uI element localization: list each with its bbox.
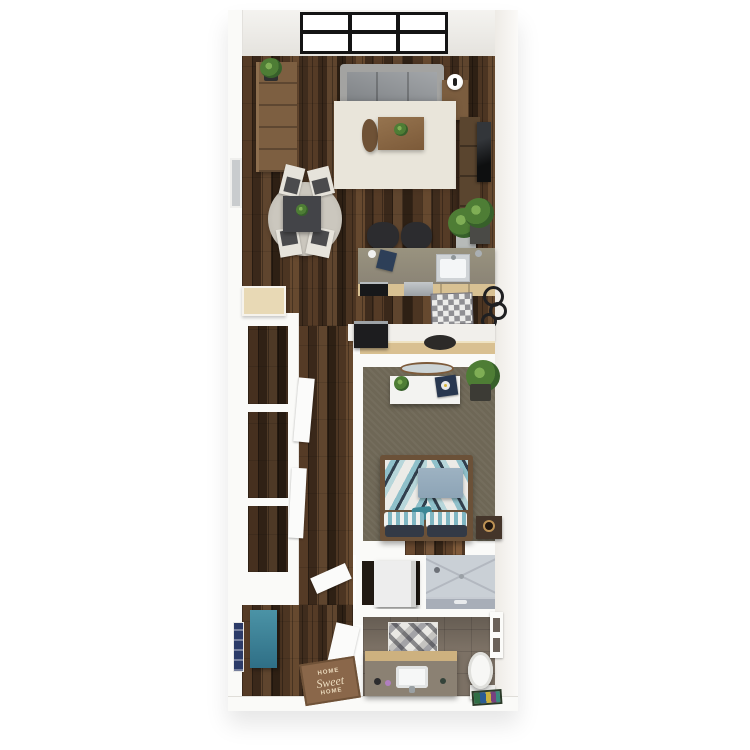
refrigerator — [354, 321, 388, 348]
recessed-shelf-slot-1 — [493, 618, 500, 632]
closet-niche-3 — [248, 506, 288, 572]
shower-floor — [426, 555, 495, 597]
bedroom-west-wall — [353, 354, 363, 555]
bedroom-south-wall-right — [465, 541, 495, 555]
bathroom-west-wall-upper — [353, 609, 363, 625]
dresser-plant — [394, 376, 409, 391]
bed-gray-blanket — [418, 468, 463, 498]
lamp-slot — [453, 78, 457, 86]
wall-tv — [477, 122, 491, 182]
sink-basin — [440, 259, 466, 278]
window-pane — [303, 34, 348, 51]
blue-bench — [250, 610, 277, 668]
counter-knob — [475, 250, 482, 257]
dining-centerpiece — [296, 204, 308, 216]
closet-niche-1 — [248, 326, 288, 404]
recessed-shelf-slot-2 — [493, 638, 500, 652]
right-wall — [495, 10, 518, 710]
stove — [360, 282, 388, 296]
coffee-table-plant — [394, 123, 408, 136]
vanity-sink — [396, 666, 428, 688]
closet-niche-2 — [248, 412, 288, 498]
curved-stool — [362, 119, 378, 152]
shower-drain — [459, 574, 464, 579]
counter-stool — [424, 335, 456, 350]
bar-stool-1 — [367, 222, 399, 250]
dishwasher — [404, 282, 433, 296]
entry-side-shelf — [242, 286, 286, 316]
apartment-floor-plan: HOME Sweet HOME — [228, 10, 518, 710]
bedroom-plant-pot — [470, 384, 491, 401]
counter-plate — [368, 250, 376, 258]
sink-faucet — [451, 255, 456, 260]
window-pane — [352, 34, 397, 51]
bed-navy-pillow-left — [385, 525, 424, 537]
living-room-window — [300, 12, 448, 54]
vanity-bottle-2 — [385, 680, 391, 686]
vanity-faucet — [409, 686, 415, 693]
window-pane — [400, 15, 445, 30]
bedroom-door-threshold — [405, 541, 465, 555]
bedroom-south-wall-left — [353, 541, 405, 555]
vanity-bottle-1 — [374, 678, 381, 685]
floor-plan-screenshot: HOME Sweet HOME — [0, 0, 750, 750]
navy-wall-art — [233, 622, 244, 672]
vanity-bottle-3 — [440, 678, 446, 684]
bed-navy-pillow-right — [427, 525, 467, 537]
shower-head — [434, 567, 440, 573]
window-pane — [352, 15, 397, 30]
record-dot — [444, 384, 447, 387]
checkered-mat — [430, 292, 473, 325]
rainbow-bath-mat — [472, 689, 503, 706]
nightstand-clock — [483, 520, 495, 532]
bookshelf-plant — [260, 58, 282, 78]
bed — [380, 455, 473, 541]
bar-stool-2 — [401, 222, 432, 250]
window-pane — [303, 15, 348, 30]
left-wall — [228, 10, 243, 710]
bathroom-north-wall — [353, 609, 495, 617]
window-pane — [400, 34, 445, 51]
oval-mirror — [400, 362, 454, 375]
washer — [374, 561, 416, 607]
west-window — [230, 158, 242, 208]
doormat: HOME Sweet HOME — [299, 656, 361, 706]
kitchen-plant — [464, 198, 494, 228]
shower-door-handle — [454, 600, 467, 604]
